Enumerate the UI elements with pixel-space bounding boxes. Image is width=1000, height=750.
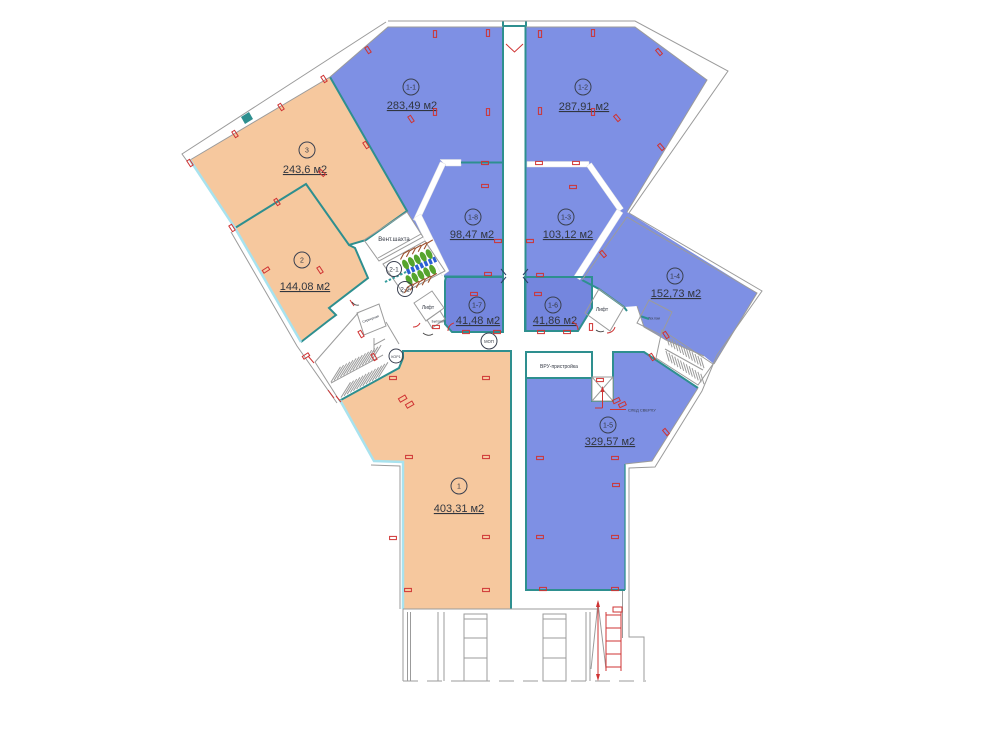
svg-text:144,08 м2: 144,08 м2 <box>280 281 330 293</box>
svg-text:2-1: 2-1 <box>389 267 399 274</box>
svg-text:287,91 м2: 287,91 м2 <box>559 101 609 113</box>
svg-text:1: 1 <box>457 484 461 491</box>
svg-text:ВРУ-пристройка: ВРУ-пристройка <box>540 363 578 370</box>
svg-text:Вент.шахта: Вент.шахта <box>378 237 410 243</box>
svg-text:41,86 м2: 41,86 м2 <box>533 315 577 327</box>
svg-text:Тех.пом: Тех.пом <box>648 317 660 321</box>
svg-text:1-8: 1-8 <box>468 215 478 222</box>
svg-text:1-6: 1-6 <box>548 303 558 310</box>
svg-text:КОР1: КОР1 <box>391 355 400 359</box>
svg-text:Лифт: Лифт <box>422 305 435 311</box>
svg-text:329,57 м2: 329,57 м2 <box>585 436 635 448</box>
svg-text:МОП: МОП <box>484 339 494 344</box>
svg-text:Бытовая: Бытовая <box>432 320 445 324</box>
svg-text:103,12 м2: 103,12 м2 <box>543 229 593 241</box>
svg-text:2: 2 <box>300 258 304 265</box>
svg-text:СЛЕД СВЕРХУ: СЛЕД СВЕРХУ <box>628 408 656 413</box>
svg-text:1-5: 1-5 <box>603 423 613 430</box>
svg-text:1-7: 1-7 <box>472 303 482 310</box>
svg-text:152,73 м2: 152,73 м2 <box>651 288 701 300</box>
svg-text:2-2: 2-2 <box>400 287 410 294</box>
svg-text:3: 3 <box>305 148 309 155</box>
svg-text:Лифт: Лифт <box>596 307 609 313</box>
svg-text:98,47 м2: 98,47 м2 <box>450 229 494 241</box>
svg-text:41,48 м2: 41,48 м2 <box>456 315 500 327</box>
svg-text:1-4: 1-4 <box>670 274 680 281</box>
svg-text:283,49 м2: 283,49 м2 <box>387 100 437 112</box>
svg-text:403,31 м2: 403,31 м2 <box>434 503 484 515</box>
svg-text:1-3: 1-3 <box>561 215 571 222</box>
svg-text:1-1: 1-1 <box>406 85 416 92</box>
svg-text:1-2: 1-2 <box>578 85 588 92</box>
